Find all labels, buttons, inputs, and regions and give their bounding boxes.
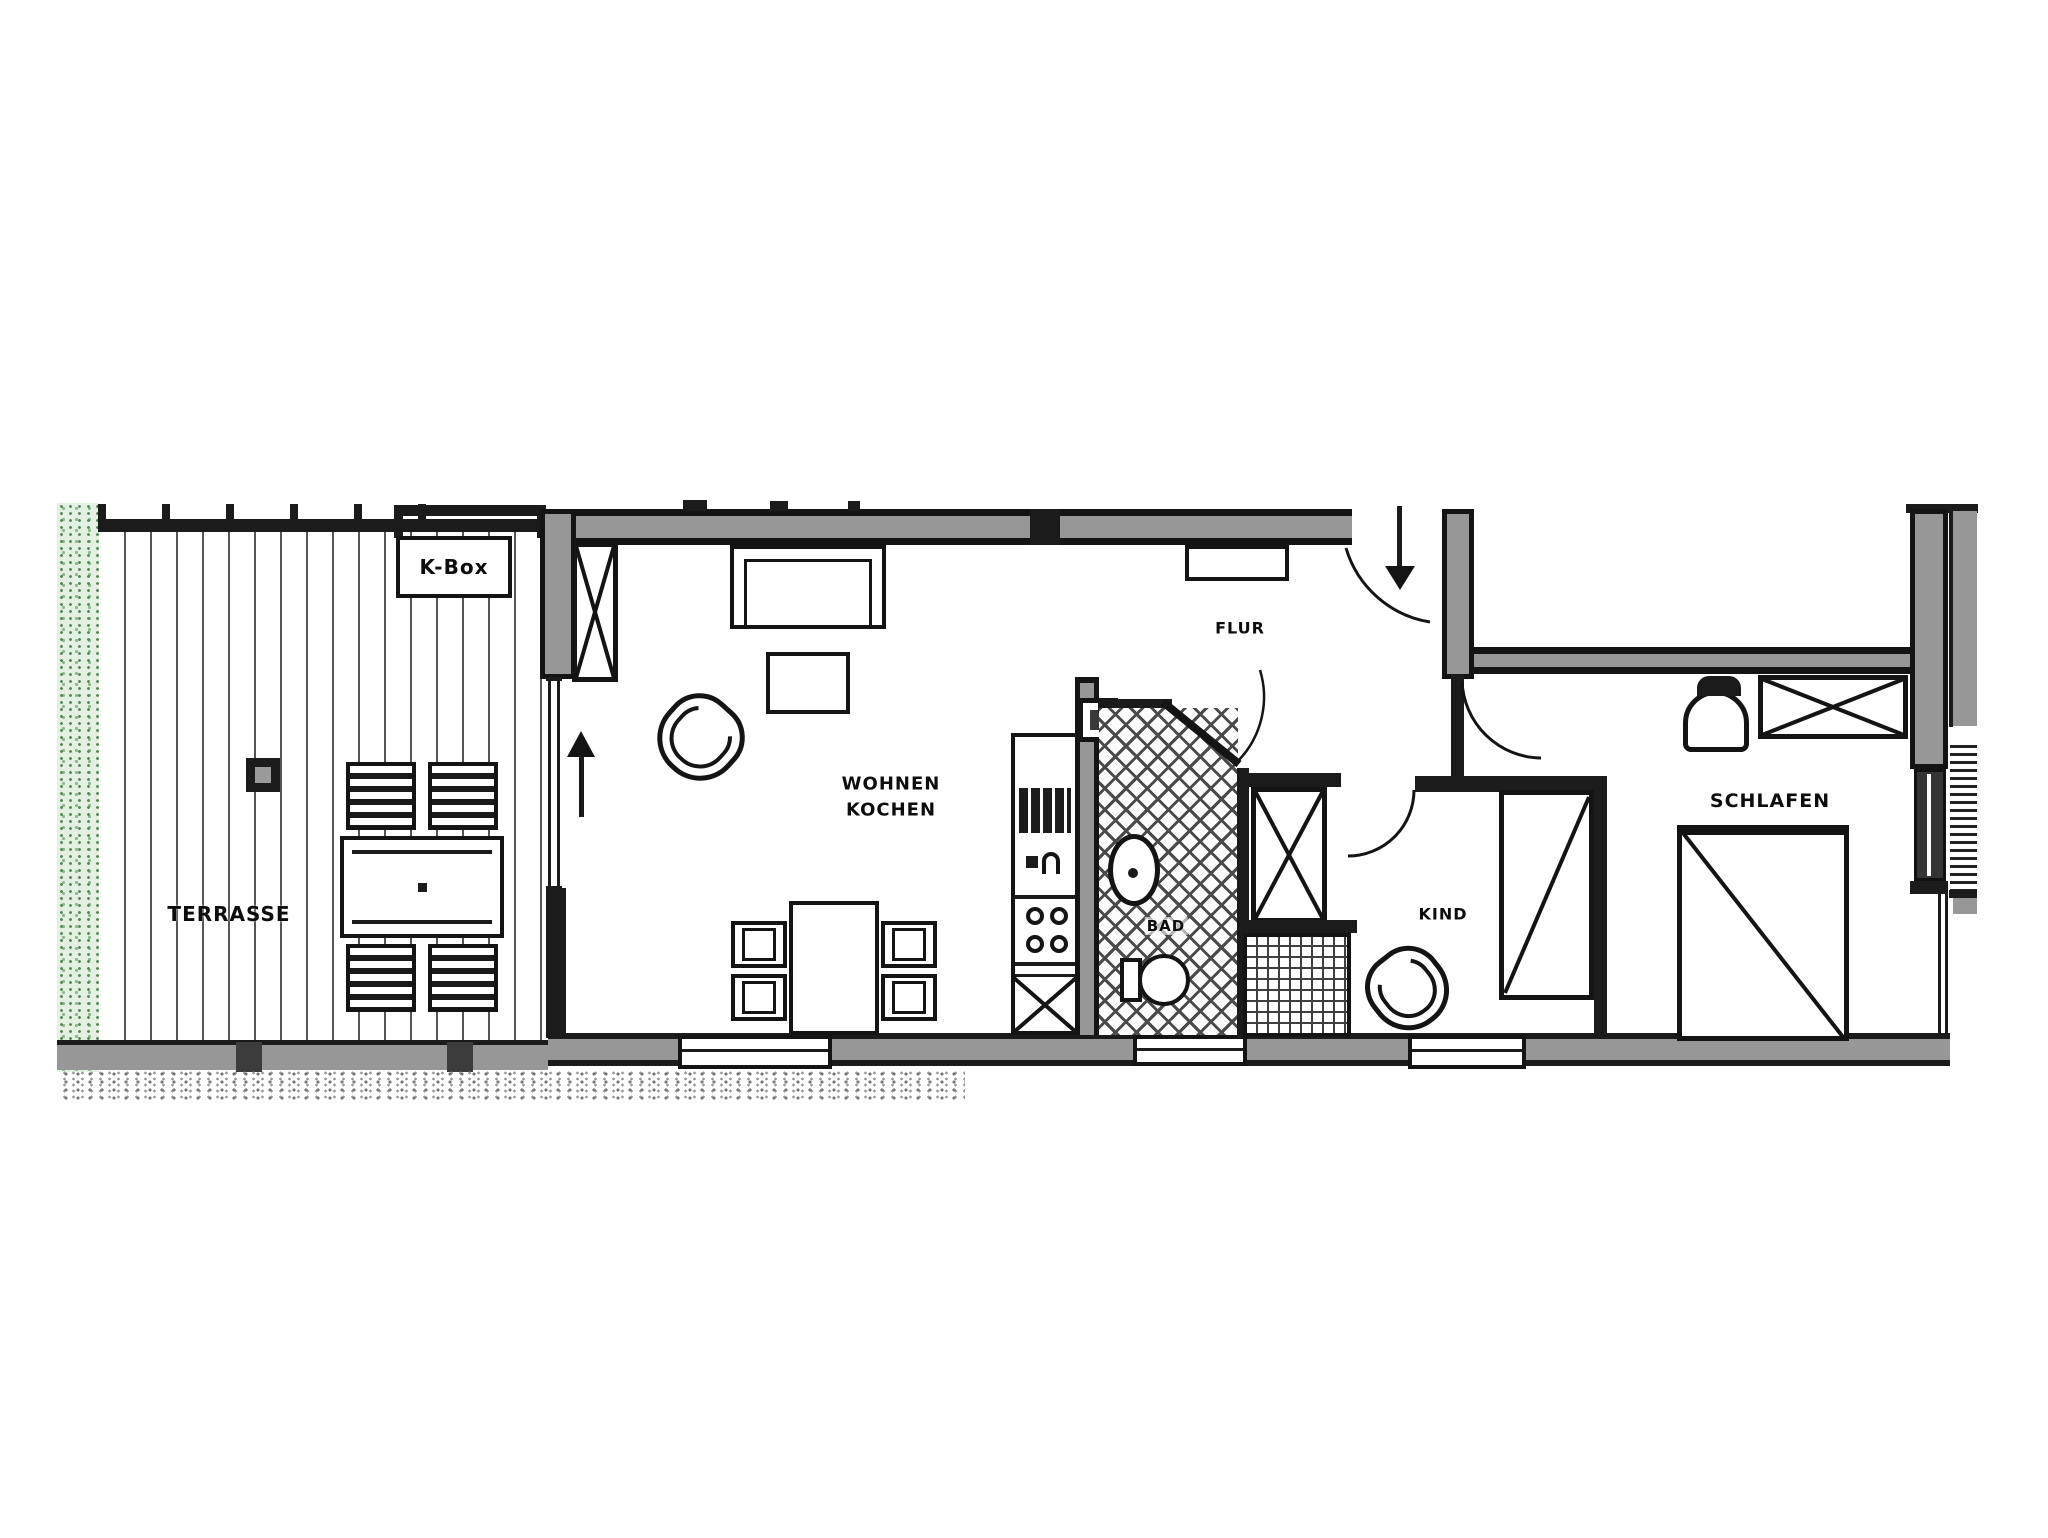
floor-plan-canvas: K-Box (0, 0, 2048, 1538)
child-door-arc (1348, 790, 1414, 856)
room-label-bath: BAD (1145, 917, 1188, 935)
wardrobe-x-lines (1255, 791, 1323, 919)
bed-diagonal (1505, 797, 1589, 993)
entrance-door-arc (1346, 548, 1430, 622)
bed-diagonal (1683, 833, 1843, 1037)
wardrobe-x-lines (1762, 679, 1904, 735)
bath-door-arc (1239, 670, 1264, 760)
hall-door-arc (1462, 681, 1541, 758)
line-overlay (0, 0, 2048, 1538)
room-label-hall: FLUR (1215, 619, 1265, 638)
room-label-bedroom: SCHLAFEN (1710, 790, 1830, 812)
room-label-living-1: WOHNEN (842, 774, 941, 795)
room-label-child: KIND (1418, 905, 1467, 924)
room-label-living-2: KOCHEN (846, 800, 936, 821)
room-label-terrace: TERRASSE (167, 902, 290, 926)
bath-door-leaf (1163, 702, 1239, 764)
shaft-x-lines (576, 546, 614, 678)
cabinet-x-lines (1014, 978, 1076, 1032)
